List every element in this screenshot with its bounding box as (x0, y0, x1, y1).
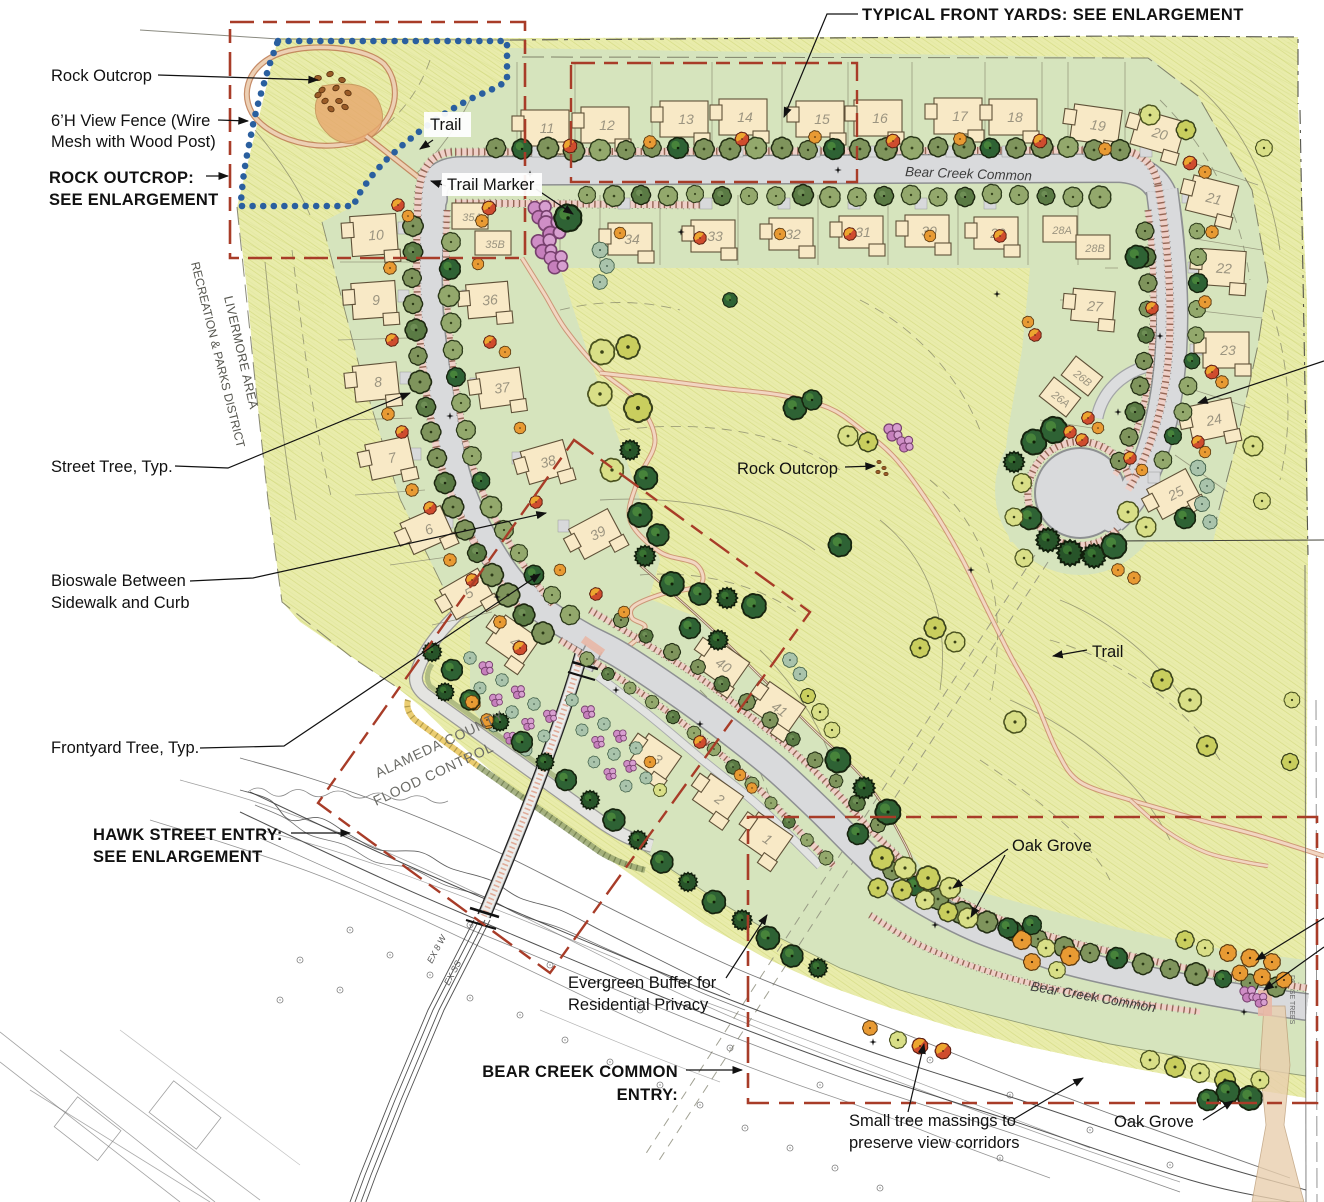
svg-text:Frontyard Tree, Typ.: Frontyard Tree, Typ. (51, 739, 199, 757)
svg-text:Evergreen Buffer for: Evergreen Buffer for (568, 974, 717, 992)
svg-text:Trail Marker: Trail Marker (447, 176, 535, 194)
svg-text:33: 33 (707, 228, 723, 244)
svg-text:13: 13 (678, 111, 694, 127)
svg-text:SEE ENLARGEMENT: SEE ENLARGEMENT (49, 191, 219, 209)
svg-text:EX SS: EX SS (442, 959, 463, 987)
svg-text:ENTRY:: ENTRY: (617, 1086, 678, 1104)
svg-text:BEAR CREEK COMMON: BEAR CREEK COMMON (482, 1063, 678, 1081)
svg-text:TYPICAL FRONT YARDS: SEE ENLAR: TYPICAL FRONT YARDS: SEE ENLARGEMENT (862, 6, 1244, 24)
svg-text:17: 17 (952, 108, 969, 124)
svg-text:31: 31 (855, 224, 871, 240)
svg-text:SEE ENLARGEMENT: SEE ENLARGEMENT (93, 848, 263, 866)
svg-text:11: 11 (540, 120, 555, 136)
svg-text:15: 15 (814, 111, 830, 127)
svg-text:Rock Outcrop: Rock Outcrop (51, 67, 152, 85)
svg-text:Rock Outcrop: Rock Outcrop (737, 460, 838, 478)
svg-text:34: 34 (624, 231, 640, 247)
svg-text:Mesh with Wood Post): Mesh with Wood Post) (51, 133, 216, 151)
svg-text:ROCK OUTCROP:: ROCK OUTCROP: (49, 169, 194, 187)
svg-text:Sidewalk and Curb: Sidewalk and Curb (51, 594, 190, 612)
svg-text:19: 19 (1089, 116, 1107, 134)
svg-text:16: 16 (872, 110, 888, 126)
svg-text:14: 14 (737, 109, 753, 125)
svg-text:Residential Privacy: Residential Privacy (568, 996, 709, 1014)
svg-text:6’H View Fence (Wire: 6’H View Fence (Wire (51, 112, 210, 130)
svg-text:12: 12 (599, 117, 615, 133)
svg-text:24: 24 (1204, 410, 1224, 429)
svg-text:36: 36 (482, 291, 499, 308)
svg-text:Small tree massings to: Small tree massings to (849, 1112, 1016, 1130)
svg-text:Oak Grove: Oak Grove (1114, 1113, 1194, 1131)
svg-text:10: 10 (368, 226, 385, 243)
svg-text:EX 8 W: EX 8 W (425, 932, 449, 965)
svg-text:35B: 35B (485, 239, 505, 251)
svg-text:22: 22 (1215, 260, 1233, 277)
svg-text:Street Tree, Typ.: Street Tree, Typ. (51, 458, 173, 476)
svg-text:28B: 28B (1084, 243, 1105, 255)
svg-text:Trail: Trail (1092, 643, 1123, 661)
svg-text:18: 18 (1007, 109, 1023, 125)
svg-text:9: 9 (372, 292, 381, 309)
svg-text:preserve view corridors: preserve view corridors (849, 1134, 1020, 1152)
svg-text:23: 23 (1219, 342, 1236, 358)
svg-text:HAWK STREET ENTRY:: HAWK STREET ENTRY: (93, 826, 283, 844)
svg-text:Bioswale Between: Bioswale Between (51, 572, 186, 590)
svg-text:32: 32 (785, 226, 801, 242)
svg-text:Trail: Trail (430, 116, 461, 134)
svg-text:Oak Grove: Oak Grove (1012, 837, 1092, 855)
svg-text:27: 27 (1086, 297, 1105, 314)
svg-text:28A: 28A (1051, 225, 1072, 237)
